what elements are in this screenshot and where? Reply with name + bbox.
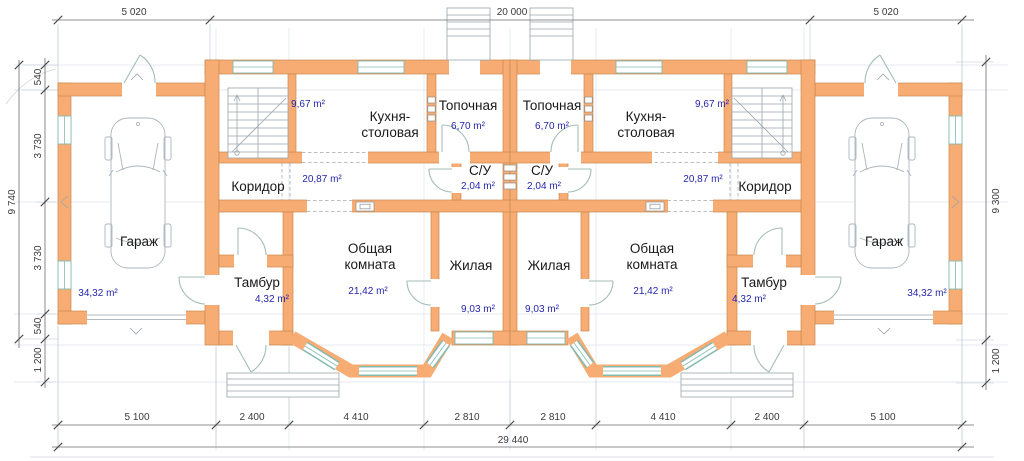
dim-left-porch: 1 200	[33, 347, 44, 372]
dim-bottom-4: 2 810	[454, 412, 479, 423]
room-label-kitchen-right-1: Кухня-	[626, 109, 667, 124]
dim-bottom-6: 4 410	[650, 412, 675, 423]
room-label-boiler-left: Топочная	[439, 98, 498, 113]
room-label-garage-left: Гараж	[120, 234, 158, 249]
dim-top-right: 5 020	[873, 7, 898, 18]
dim-left-1: 540	[33, 68, 44, 85]
dim-total-width: 29 440	[498, 435, 529, 446]
room-label-wc-right: С/У	[531, 163, 554, 178]
dim-bottom-2: 2 400	[239, 412, 264, 423]
dim-left-2: 3 730	[33, 133, 44, 158]
room-area-garage-left: 34,32 m²	[78, 288, 118, 299]
room-label-common-right-2: комната	[626, 257, 678, 272]
room-label-corridor-right: Коридор	[738, 179, 791, 194]
room-label-corridor-left: Коридор	[231, 179, 284, 194]
dim-left-3: 3 730	[33, 245, 44, 270]
room-label-living-right: Жилая	[528, 258, 571, 273]
room-area-corridor-left: 20,87 m²	[302, 174, 342, 185]
room-label-kitchen-left-2: столовая	[361, 125, 418, 140]
dim-top-left: 5 020	[121, 7, 146, 18]
floor-plan-page: 5 020 20 000 5 020 5 100 2 400 4 410 2 8…	[0, 0, 1024, 461]
room-area-wc-left: 2,04 m²	[461, 181, 496, 192]
dim-bottom-1: 5 100	[124, 412, 149, 423]
room-area-common-right: 21,42 m²	[633, 286, 673, 297]
dim-top-center: 20 000	[497, 7, 528, 18]
unit-left	[58, 8, 510, 397]
room-label-living-left: Жилая	[450, 258, 493, 273]
room-area-living-left: 9,03 m²	[461, 304, 496, 315]
dim-right-porch: 1 200	[991, 348, 1002, 373]
central-shaft	[504, 165, 516, 189]
room-label-common-right-1: Общая	[630, 241, 674, 256]
room-label-vestibule-right: Тамбур	[741, 275, 787, 290]
room-label-common-left-1: Общая	[348, 241, 392, 256]
room-label-boiler-right: Топочная	[523, 98, 582, 113]
room-area-boiler-right: 6,70 m²	[535, 121, 570, 132]
room-label-wc-left: С/У	[469, 163, 492, 178]
room-area-wc-right: 2,04 m²	[527, 181, 562, 192]
room-area-common-left: 21,42 m²	[348, 286, 388, 297]
room-label-common-left-2: комната	[344, 257, 396, 272]
dim-bottom-5: 2 810	[540, 412, 565, 423]
dim-left-4: 540	[33, 317, 44, 334]
room-label-vestibule-left: Тамбур	[234, 275, 280, 290]
dim-left-total: 9 740	[7, 189, 18, 214]
room-area-garage-right: 34,32 m²	[907, 288, 947, 299]
room-label-kitchen-left-1: Кухня-	[370, 109, 411, 124]
room-area-kitchen-left: 9,67 m²	[291, 99, 326, 110]
dim-right-height: 9 300	[991, 188, 1002, 213]
floor-plan-svg: 5 020 20 000 5 020 5 100 2 400 4 410 2 8…	[0, 0, 1024, 461]
unit-right	[510, 8, 962, 397]
room-area-vestibule-left: 4,32 m²	[255, 294, 290, 305]
room-area-kitchen-right: 9,67 m²	[695, 99, 730, 110]
room-area-vestibule-right: 4,32 m²	[732, 294, 767, 305]
dim-bottom-8: 5 100	[870, 412, 895, 423]
room-area-living-right: 9,03 m²	[525, 304, 560, 315]
room-label-garage-right: Гараж	[865, 234, 903, 249]
room-label-kitchen-right-2: столовая	[617, 125, 674, 140]
room-area-boiler-left: 6,70 m²	[451, 121, 486, 132]
dim-bottom-7: 2 400	[754, 412, 779, 423]
room-area-corridor-right: 20,87 m²	[683, 174, 723, 185]
dim-bottom-3: 4 410	[343, 412, 368, 423]
